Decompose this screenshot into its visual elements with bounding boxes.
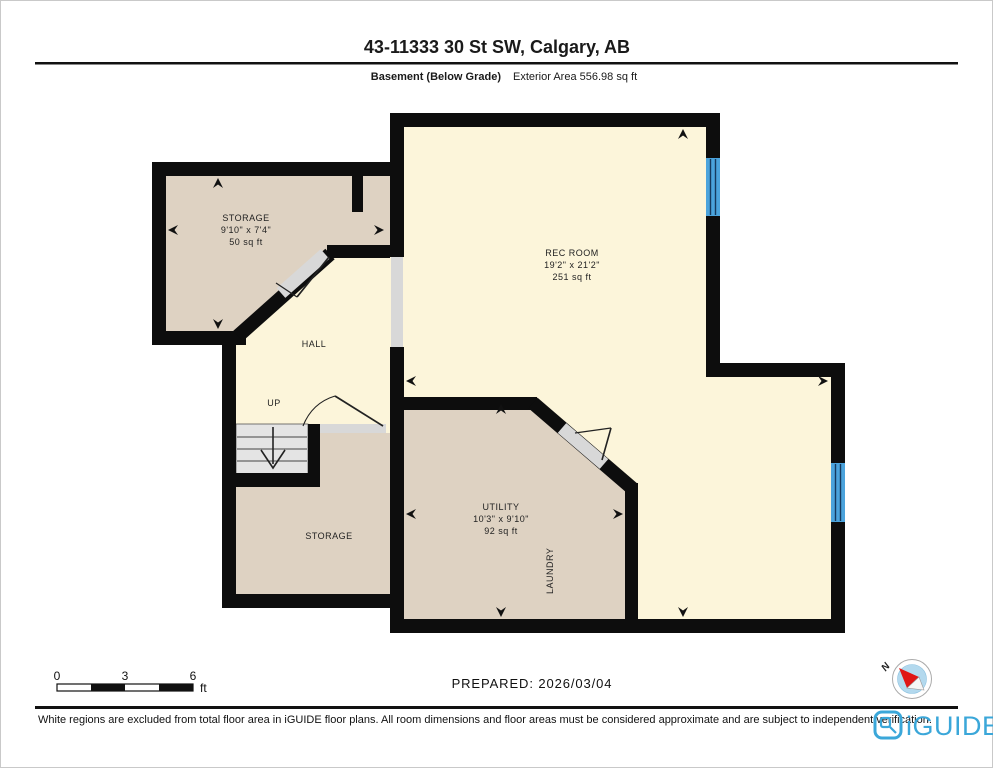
laundry-name: LAUNDRY <box>545 548 555 594</box>
opening-hall-storage <box>320 424 386 433</box>
rec-room-name: REC ROOM <box>545 248 599 258</box>
floor-label: Basement (Below Grade) <box>371 71 502 83</box>
utility-dims: 10'3" x 9'10" <box>473 514 529 524</box>
rec-room-area: 251 sq ft <box>552 272 591 282</box>
wall <box>390 113 720 127</box>
opening-hall-rec <box>391 257 403 347</box>
compass-icon: N <box>880 660 932 699</box>
wall <box>327 245 390 258</box>
wall <box>152 162 404 176</box>
window-marker <box>706 158 720 216</box>
scale-bar: 0 3 6 ft <box>54 669 208 695</box>
wall <box>152 162 166 345</box>
iguide-brand-text: iGUIDE <box>906 711 993 741</box>
up-label: UP <box>267 398 281 408</box>
wall <box>706 363 845 377</box>
footer-disclaimer: White regions are excluded from total fl… <box>38 714 932 726</box>
exterior-area-label: Exterior Area 556.98 sq ft <box>513 71 637 83</box>
compass-north-label: N <box>880 661 894 674</box>
page-title: 43-11333 30 St SW, Calgary, AB <box>364 37 630 57</box>
floor-plan-canvas: 43-11333 30 St SW, Calgary, AB Basement … <box>0 0 993 768</box>
scale-tick-0: 0 <box>54 669 61 683</box>
scale-bar-segment <box>159 684 193 691</box>
stairs <box>236 424 308 474</box>
wall <box>390 113 404 257</box>
footer-divider <box>35 706 958 709</box>
wall <box>390 619 845 633</box>
iguide-logo-icon-fold <box>890 727 896 733</box>
utility-name: UTILITY <box>482 502 519 512</box>
rec-room-dims: 19'2" x 21'2" <box>544 260 600 270</box>
scale-tick-3: 3 <box>122 669 129 683</box>
scale-unit: ft <box>200 681 207 695</box>
storage-upper-area: 50 sq ft <box>229 237 263 247</box>
utility-area: 92 sq ft <box>484 526 518 536</box>
wall <box>222 594 404 608</box>
wall <box>625 483 638 626</box>
window-marker <box>831 463 845 522</box>
wall <box>222 473 320 487</box>
header-divider <box>35 62 958 65</box>
wall <box>222 331 236 608</box>
scale-bar-segment <box>91 684 125 691</box>
wall <box>706 113 720 377</box>
wall <box>390 347 404 633</box>
scale-tick-6: 6 <box>190 669 197 683</box>
wall-stub <box>352 176 363 212</box>
hall-name: HALL <box>302 339 327 349</box>
wall <box>390 397 537 410</box>
storage-lower-name: STORAGE <box>305 531 352 541</box>
floor-plan-page: 43-11333 30 St SW, Calgary, AB Basement … <box>0 0 993 768</box>
storage-upper-name: STORAGE <box>222 213 269 223</box>
storage-upper-dims: 9'10" x 7'4" <box>221 225 271 235</box>
prepared-date: PREPARED: 2026/03/04 <box>452 676 613 691</box>
